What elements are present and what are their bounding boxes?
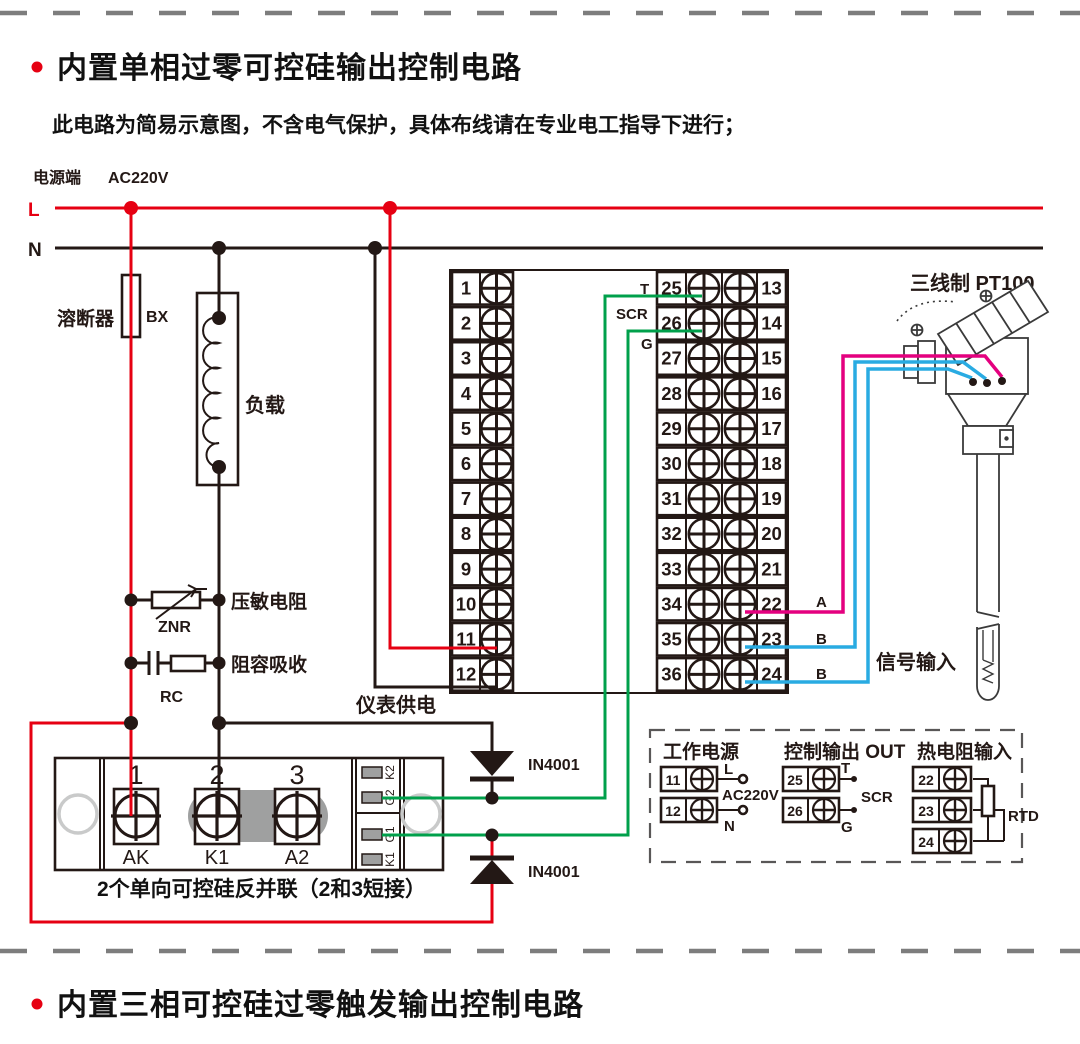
junction-dot [124,201,138,215]
junction-dot [212,716,226,730]
junction-dot [213,657,226,670]
terminal-number: 4 [461,383,472,404]
legend-box: 工作电源 11 12 L AC220V N 控制输出 OUT 25 26 T S… [650,730,1039,862]
screw-terminal [725,449,755,479]
screw-terminal [725,308,755,338]
collar-dot [1004,436,1008,440]
pin [362,767,382,778]
module-terminal-number: 2 [209,760,224,790]
terminal-number: 3 [461,348,471,369]
screw-terminal [689,659,719,689]
rc-label: 阻容吸收 [231,653,307,676]
terminal-number: 5 [461,418,471,439]
module-terminal-name: AK [123,847,150,869]
diode-bottom-label: IN4001 [528,864,580,881]
terminal-number: 18 [761,453,782,474]
screw-terminal [689,308,719,338]
terminal-number: 7 [461,488,471,509]
junction-dot [212,241,226,255]
module-terminal-name: K1 [205,847,229,869]
terminal-number: 2 [461,313,471,334]
screw-terminal [481,589,511,619]
terminal-number: 6 [461,453,471,474]
terminal-number: 29 [661,418,682,439]
wire-b1-label: B [816,631,827,648]
bullet-icon [32,62,43,73]
terminal-number: 35 [661,629,682,650]
screw-terminal [725,343,755,373]
diode-top-label: IN4001 [528,757,580,774]
junction-dot [125,594,138,607]
legend-terminal: 22 [918,772,934,788]
screw-terminal [481,378,511,408]
junction-dot [213,594,226,607]
probe-tube-upper [977,454,999,617]
wire-b2-label: B [816,666,827,683]
cover-screw-icon [912,325,923,336]
legend-rtd-title: 热电阻输入 [917,740,1012,763]
screw-terminal [481,624,511,654]
section1-title: 内置单相过零可控硅输出控制电路 [57,52,522,85]
legend-n: N [724,818,735,835]
screw-terminal [481,343,511,373]
legend-voltage: AC220V [722,787,779,804]
screw-terminal [689,484,719,514]
screw-terminal [689,624,719,654]
bullet-icon [32,999,43,1010]
fuse-code: BX [146,309,169,326]
legend-power-title: 工作电源 [663,740,739,763]
terminal-number: 1 [461,278,471,299]
terminal-number: 13 [761,278,782,299]
legend-terminal: 26 [787,803,803,819]
screw-terminal [689,589,719,619]
pin [362,792,382,803]
screw-terminal [691,768,713,790]
load-label: 负载 [245,393,285,417]
screw-terminal [689,378,719,408]
terminal-number: 33 [661,558,682,579]
terminal-number: 31 [661,488,682,509]
screw-terminal [689,273,719,303]
hinge-dotted-icon [897,301,956,321]
pin [362,829,382,840]
legend-t: T [841,760,850,777]
k1-to-diode-wire [219,723,492,751]
screw-terminal [689,414,719,444]
sensor-terminal-dot [969,378,977,386]
terminal-number: 36 [661,664,682,685]
terminal-number: 9 [461,558,471,579]
module-terminal-name: A2 [285,847,309,869]
output-scr-label: SCR [616,306,648,323]
terminal-number: 34 [661,593,682,614]
screw-terminal [725,589,755,619]
rtd-element-icon [983,630,993,683]
screw-terminal [689,554,719,584]
section2-title: 内置三相可控硅过零触发输出控制电路 [57,989,584,1022]
screw-terminal [689,449,719,479]
terminal-number: 10 [456,593,477,614]
terminal-number: 28 [661,383,682,404]
junction-dot [368,241,382,255]
sensor-terminal-dot [983,379,991,387]
cover-screw-icon [981,291,992,302]
screw-terminal [944,830,966,852]
legend-rtd-label: RTD [1008,808,1039,825]
screw-terminal [725,378,755,408]
screw-terminal [689,343,719,373]
screw-terminal [691,799,713,821]
junction-dot [124,716,138,730]
terminal-number: 27 [661,348,682,369]
pin [362,854,382,865]
line-l-label: L [28,200,40,221]
legend-terminal: 11 [666,772,681,788]
varistor-code: ZNR [158,619,191,636]
screw-terminal [944,768,966,790]
screw-terminal [481,554,511,584]
legend-l: L [724,761,733,778]
screw-terminal [725,659,755,689]
meter-supply-label: 仪表供电 [355,693,436,717]
fuse-label: 溶断器 [57,307,115,330]
screw-terminal [725,519,755,549]
line-n-label: N [28,240,42,261]
legend-scr: SCR [861,789,893,806]
terminal-number: 16 [761,383,782,404]
terminal-number: 21 [761,558,782,579]
diode-top-icon [470,751,514,776]
screw-terminal [944,799,966,821]
terminal-number: 32 [661,523,682,544]
screw-terminal [813,768,835,790]
legend-terminal: 25 [787,772,803,788]
terminal-number: 11 [456,629,476,650]
scr-caption: 2个单向可控硅反并联（2和3短接） [97,877,426,901]
pin-label: K2 [383,765,397,780]
page: 内置单相过零可控硅输出控制电路 此电路为简易示意图，不含电气保护，具体布线请在专… [0,0,1080,1039]
terminal-number: 15 [761,348,782,369]
scr-module: 1 2 3 AK K1 A2 K2 G2 G1 K1 [55,758,443,870]
sensor-neck [948,394,1026,426]
legend-g: G [841,819,853,836]
section1-subtitle: 此电路为简易示意图，不含电气保护，具体布线请在专业电工指导下进行； [52,113,745,137]
junction-dot [486,792,499,805]
terminal-number: 8 [461,523,471,544]
module-terminal-number: 3 [289,760,304,790]
wire-a-label: A [816,594,827,611]
legend-terminal: 23 [918,803,934,819]
rc-code: RC [160,689,184,706]
wiring-diagram: 内置单相过零可控硅输出控制电路 此电路为简易示意图，不含电气保护，具体布线请在专… [0,0,1080,1039]
resistor-symbol [171,656,205,671]
screw-terminal [725,414,755,444]
screw-terminal [481,449,511,479]
junction-dot [383,201,397,215]
pt100-sensor: 三线制 PT100 [897,271,1048,700]
terminal-number: 12 [456,664,477,685]
junction-dot [125,657,138,670]
power-voltage: AC220V [108,170,169,187]
varistor-label: 压敏电阻 [231,590,307,613]
terminal-number: 20 [761,523,782,544]
output-g-label: G [641,336,653,353]
terminal-number: 17 [761,418,782,439]
legend-terminal: 12 [665,803,681,819]
screw-terminal [481,659,511,689]
screw-terminal [725,624,755,654]
power-label: 电源端 [33,168,81,187]
screw-terminal [725,273,755,303]
signal-input-label: 信号输入 [876,650,956,674]
pin-label: K1 [383,852,397,867]
terminal-number: 19 [761,488,782,509]
sensor-terminal-dot [998,377,1006,385]
terminal-block-right: 2513261427152816291730183119322033213422… [657,272,786,691]
screw-terminal [813,799,835,821]
screw-terminal [725,554,755,584]
terminal-block-left: 123456789101112 [452,272,513,691]
screw-terminal [481,273,511,303]
junction-dot [486,829,499,842]
screw-terminal [481,414,511,444]
screw-terminal [481,308,511,338]
terminal-number: 30 [661,453,682,474]
screw-terminal [481,519,511,549]
diode-bottom-icon [470,860,514,884]
screw-terminal [481,484,511,514]
screw-terminal [725,484,755,514]
legend-terminal: 24 [918,834,934,850]
screw-terminal [689,519,719,549]
terminal-number: 14 [761,313,782,334]
